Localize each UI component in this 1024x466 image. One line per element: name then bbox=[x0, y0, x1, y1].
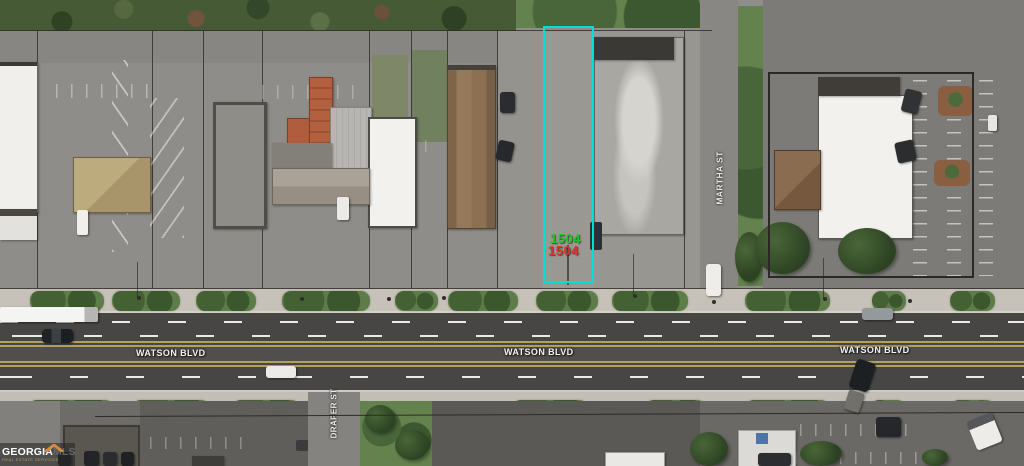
parking-stripes bbox=[56, 84, 148, 98]
grass-strip bbox=[612, 291, 688, 311]
building-roof-brick-small bbox=[287, 118, 310, 146]
truck bbox=[0, 307, 98, 322]
parcel-line bbox=[0, 30, 712, 31]
grass-strip bbox=[112, 291, 180, 311]
lane-marking bbox=[0, 335, 1024, 337]
tree bbox=[365, 405, 395, 433]
car bbox=[266, 366, 296, 378]
canopy-blue-sign bbox=[756, 433, 768, 444]
mossy-patch bbox=[372, 55, 408, 117]
building-roof-warehouse-dark bbox=[594, 37, 674, 60]
car bbox=[862, 308, 893, 320]
building-dark-band bbox=[0, 209, 37, 216]
utility-pole bbox=[712, 300, 716, 304]
street-label-watson-west: WATSON BLVD bbox=[136, 348, 206, 358]
parking-stripes bbox=[979, 80, 993, 276]
tree bbox=[922, 449, 948, 466]
parcel-line bbox=[684, 31, 685, 288]
grass-strip bbox=[536, 291, 598, 311]
parcel-address-red: 1504 bbox=[548, 243, 579, 258]
grass-strip bbox=[950, 291, 995, 311]
tree-canopy bbox=[0, 0, 516, 31]
car bbox=[988, 115, 997, 131]
tree bbox=[690, 432, 728, 466]
utility-pole bbox=[387, 297, 391, 301]
car bbox=[42, 329, 73, 343]
building-roof-tan-hip bbox=[73, 157, 151, 213]
lane-marking bbox=[0, 321, 1024, 323]
georgia-mls-watermark: GEORGIAMLS REAL ESTATE SERVICES bbox=[0, 443, 75, 466]
grass-strip bbox=[448, 291, 518, 311]
car bbox=[103, 452, 117, 466]
grass-top bbox=[516, 0, 712, 28]
street-label-martha-cell: MARTHA ST bbox=[702, 140, 738, 216]
building-roof-gray bbox=[213, 102, 267, 229]
grass-strip bbox=[395, 291, 438, 311]
car bbox=[876, 417, 901, 437]
grass-strip bbox=[196, 291, 256, 311]
tree bbox=[395, 430, 429, 460]
pole-shadow bbox=[137, 262, 138, 298]
grass-strip bbox=[282, 291, 370, 311]
building-roof-metal bbox=[330, 107, 372, 171]
parcel-line bbox=[203, 31, 204, 288]
building-connector bbox=[272, 143, 332, 168]
pole-shadow bbox=[633, 254, 634, 296]
street-label-draper: DRAPER ST bbox=[329, 388, 338, 438]
car bbox=[706, 264, 721, 296]
car bbox=[77, 210, 88, 235]
street-label-draper-cell: DRAPER ST bbox=[308, 384, 360, 442]
utility-pole bbox=[442, 296, 446, 300]
parking-stripes bbox=[150, 437, 250, 449]
car bbox=[337, 197, 349, 220]
car bbox=[758, 453, 791, 466]
parking-lot-bottom bbox=[140, 401, 308, 466]
car bbox=[500, 92, 515, 113]
building-roof-brown-hip bbox=[447, 65, 496, 229]
grass-strip bbox=[745, 291, 830, 311]
building-roof-small bbox=[192, 456, 224, 466]
car bbox=[84, 451, 99, 466]
building-roof-warehouse bbox=[594, 37, 684, 235]
utility-pole bbox=[300, 297, 304, 301]
yellow-line bbox=[0, 341, 1024, 343]
street-label-watson-center: WATSON BLVD bbox=[504, 347, 574, 357]
car bbox=[121, 452, 134, 466]
tree bbox=[800, 441, 842, 466]
building-roof-white-left bbox=[0, 62, 38, 213]
trailer bbox=[843, 389, 864, 413]
parking-stripes bbox=[150, 98, 184, 238]
street-label-watson-east: WATSON BLVD bbox=[840, 345, 910, 355]
roof-icon bbox=[44, 444, 64, 452]
building-roof-lower-left bbox=[0, 216, 37, 240]
building-roof-gray-hip bbox=[272, 168, 370, 205]
utility-pole bbox=[908, 299, 912, 303]
watermark-brand-row: GEORGIAMLS bbox=[2, 447, 75, 457]
parcel-outline-right bbox=[768, 72, 974, 278]
aerial-map: WATSON BLVD WATSON BLVD WATSON BLVD DRAP… bbox=[0, 0, 1024, 466]
street-label-martha: MARTHA ST bbox=[715, 151, 725, 204]
building-roof-white-bottom bbox=[605, 452, 665, 466]
building-roof-white-mid bbox=[368, 117, 417, 228]
